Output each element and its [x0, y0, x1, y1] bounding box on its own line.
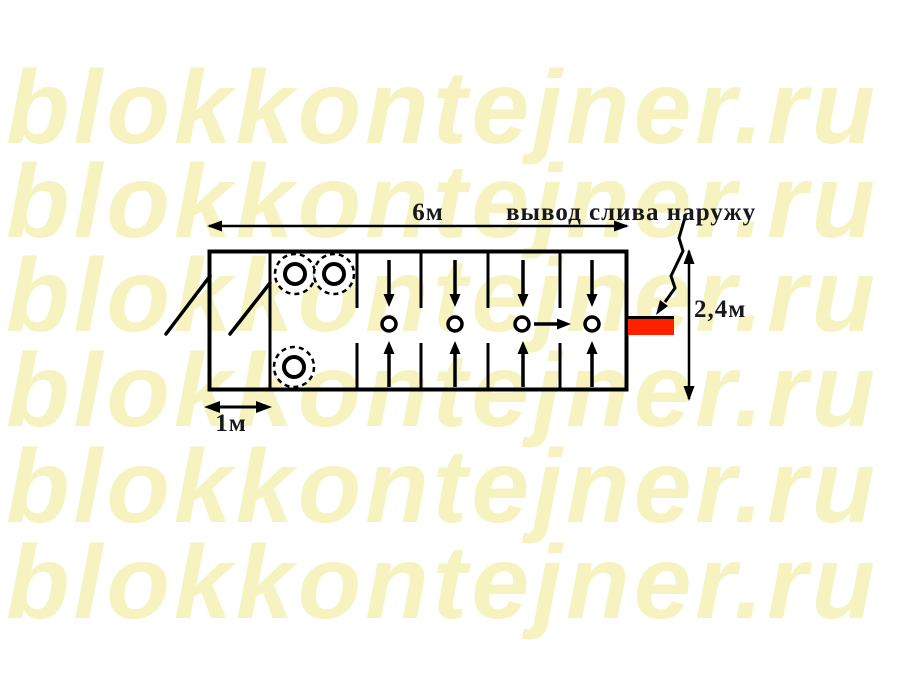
dimension-entry-width: 1м: [204, 401, 272, 437]
drain-outlet: [628, 317, 674, 335]
door-swing-lines: [166, 276, 270, 334]
entry-width-label: 1м: [215, 410, 247, 437]
stall-symbols: [382, 260, 599, 387]
sink-icon: [275, 254, 315, 294]
height-label: 2,4м: [694, 296, 746, 323]
door-swing-line: [230, 283, 270, 334]
door-swing-line: [166, 276, 210, 334]
arrowhead-left: [207, 221, 222, 232]
drain-note-label: вывод слива наружу: [506, 199, 756, 226]
sink-icon: [274, 347, 314, 387]
leader-arrow: [656, 214, 686, 315]
down-arrow-icon: [587, 260, 598, 307]
arrowhead-right: [256, 401, 272, 413]
floor-drain-icon: [515, 317, 529, 331]
floor-drain-icon: [448, 317, 462, 331]
down-arrow-icon: [518, 260, 529, 307]
arrowhead-up: [684, 249, 695, 264]
page: blokkontejner.ru blokkontejner.ru blokko…: [0, 0, 900, 675]
dimension-height: 2,4м: [684, 249, 747, 401]
flow-right-arrow-icon: [534, 319, 571, 330]
up-arrow-icon: [450, 341, 461, 387]
arrowhead-down: [684, 386, 695, 401]
floor-plan-diagram: 6м вывод слива наружу 2,4м 1м: [0, 0, 900, 675]
up-arrow-icon: [384, 341, 395, 387]
floor-drain-icon: [382, 317, 396, 331]
up-arrow-icon: [587, 341, 598, 387]
floor-drain-icon: [585, 317, 599, 331]
sink-icons: [274, 254, 354, 387]
sink-icon: [314, 254, 354, 294]
container-outline: [210, 252, 627, 390]
down-arrow-icon: [450, 260, 461, 307]
up-arrow-icon: [518, 341, 529, 387]
length-label: 6м: [412, 199, 444, 226]
down-arrow-icon: [384, 260, 395, 307]
